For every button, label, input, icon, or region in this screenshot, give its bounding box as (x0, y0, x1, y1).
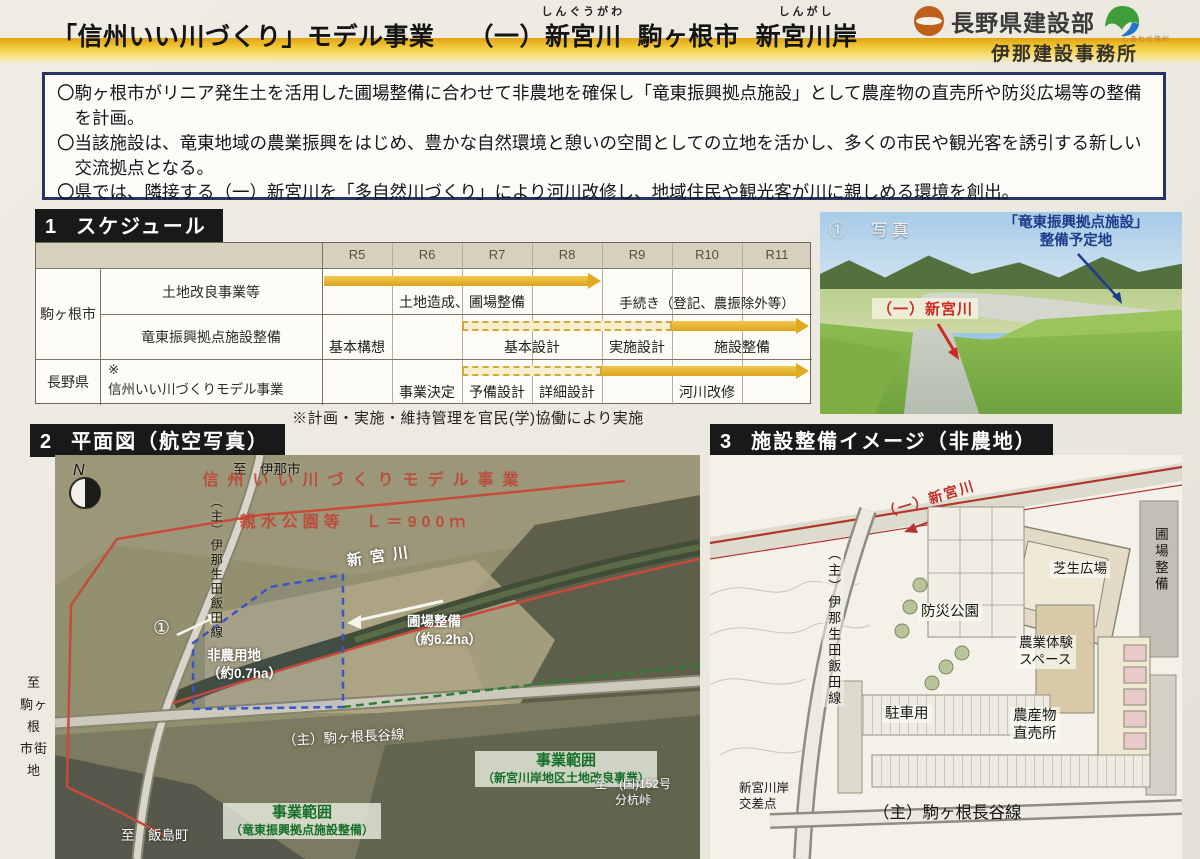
aerial-scope2-line1: 事業範囲 (482, 752, 650, 771)
aerial-to-komagane-line2: 駒ヶ根 (14, 694, 54, 738)
aerial-to-komagane-line1: 至 (14, 672, 54, 694)
site-photo: ① 写真 「竜東振興拠点施設」 整備予定地 （一）新宮川 (820, 212, 1182, 414)
plan-farm-exp-line1: 農業体験 (1019, 635, 1073, 652)
phase-zosei: 土地造成、圃場整備 (322, 292, 602, 312)
aerial-scope1-label: 事業範囲 （竜東振興拠点施設整備） (223, 803, 381, 839)
item-model-project-mark: ※ (108, 362, 314, 378)
photo-facility-label-line2: 整備予定地 (978, 232, 1174, 250)
title-river: 新宮川 (545, 23, 622, 51)
arrow-bar-river (602, 366, 796, 376)
aerial-scope1-line1: 事業範囲 (230, 804, 374, 823)
phase-tetsuzuki: 手続き（登記、農振除外等） (602, 292, 812, 312)
section1-number: 1 (45, 216, 58, 238)
summary-bullet-3: 〇県では、隣接する（一）新宮川を「多自然川づくり」により河川改修し、地域住民や観… (57, 180, 1149, 205)
section3-number: 3 (720, 431, 733, 453)
dotted-bar-river (462, 366, 602, 376)
plan-crossing-line1: 新宮川岸 (739, 781, 789, 797)
arrow-head-land (588, 273, 601, 289)
office-name: 伊那建設事務所 (991, 39, 1138, 66)
aerial-farmland-line2: （約6.2ha） (407, 631, 482, 649)
section2-number: 2 (40, 431, 53, 453)
phase-kasen-kaishu: 河川改修 (602, 382, 812, 402)
title-river-prefix: （一） (469, 23, 546, 51)
section3-title: 施設整備イメージ（非農地） (751, 431, 1037, 453)
dotted-bar-facility (462, 321, 672, 331)
summary-bullet-1: 〇駒ヶ根市がリニア発生土を活用した圃場整備に合わせて非農地を確保し「竜東振興拠点… (57, 81, 1149, 131)
title-city: 駒ヶ根市 (638, 23, 740, 51)
plan-lawn-label: 芝生広場 (1050, 561, 1110, 578)
gantt-row-3: 事業決定 予備設計 詳細設計 河川改修 (322, 359, 812, 405)
aerial-model-project-label: 信州いい川づくりモデル事業 (185, 471, 545, 492)
arrow-bar-land (324, 276, 588, 286)
plan-bosai-label: 防災公園 (918, 603, 982, 621)
item-model-project-name: 信州いい川づくりモデル事業 (108, 378, 314, 398)
site-plan: （一）新宮川 （主）伊那生田飯田線 芝生広場 農業体験 スペース 防災公園 農産… (710, 455, 1182, 859)
schedule-note: ※計画・実施・維持管理を官民(学)協働により実施 (292, 407, 644, 428)
item-land-improvement: 土地改良事業等 (100, 269, 322, 314)
aerial-photo: N 至 伊那市 （主）伊那生田飯田線 信州いい川づくりモデル事業 親水公園等 Ｌ… (55, 455, 700, 859)
plan-farm-exp-line2: スペース (1019, 652, 1073, 669)
aerial-nonfarm-line2: （約0.7ha） (207, 665, 282, 683)
group-komagane: 駒ヶ根市 (36, 269, 100, 359)
title-main: 「信州いい川づくり」モデル事業 (52, 23, 435, 51)
aerial-nonfarm-label: 非農用地 （約0.7ha） (207, 647, 282, 682)
year-col-r8: R8 (532, 247, 602, 262)
item-ryuto-facility: 竜東振興拠点施設整備 (100, 314, 322, 359)
plan-road-inada-label: （主）伊那生田飯田線 (822, 547, 844, 707)
aerial-farmland-label: 圃場整備 （約6.2ha） (407, 613, 482, 648)
group-nagano: 長野県 (36, 359, 100, 405)
gantt-row-2: 基本構想 基本設計 実施設計 施設整備 (322, 314, 812, 359)
aerial-to-152-line2: 分杭峠 (595, 793, 671, 809)
phase-shisetsu-seibi: 施設整備 (672, 337, 812, 357)
section2-title: 平面図（航空写真） (71, 431, 269, 453)
plan-crossing-label: 新宮川岸 交差点 (736, 781, 792, 812)
section2-header: 2平面図（航空写真） (30, 424, 285, 457)
plan-road-hase-label: （主）駒ヶ根長谷線 (870, 803, 1025, 824)
aerial-scope1-line2: （竜東振興拠点施設整備） (230, 823, 374, 838)
plan-hojo-label: 圃場整備 (1148, 527, 1171, 593)
item-model-project: ※ 信州いい川づくりモデル事業 (100, 359, 322, 405)
gantt-row-1: 土地造成、圃場整備 手続き（登記、農振除外等） (322, 269, 812, 314)
aerial-nonfarm-line1: 非農用地 (207, 647, 282, 665)
aerial-to-iijima: 至 飯島町 (121, 827, 189, 845)
document-page: 「信州いい川づくり」モデル事業（一）しんぐうがわ新宮川駒ヶ根市しんがし新宮川岸 … (0, 0, 1200, 859)
phase-kihon-koso: 基本構想 (322, 337, 392, 357)
phase-shosai-sekkei: 詳細設計 (532, 382, 602, 402)
plan-chokubai-line1: 農産物 (1013, 707, 1057, 725)
year-col-r5: R5 (322, 247, 392, 262)
year-col-r10: R10 (672, 247, 742, 262)
aerial-park-length-label: 親水公園等 Ｌ＝900ｍ (205, 513, 505, 534)
org-name: 長野県建設部 (951, 4, 1095, 38)
section3-header: 3施設整備イメージ（非農地） (710, 424, 1053, 457)
section1-header: 1スケジュール (35, 209, 223, 242)
photo-facility-label: 「竜東振興拠点施設」 整備予定地 (978, 214, 1174, 250)
phase-kihon-sekkei: 基本設計 (462, 337, 602, 357)
shiawase-shinshu-leaf-icon (1102, 4, 1142, 38)
summary-bullet-2: 〇当該施設は、竜東地域の農業振興をはじめ、豊かな自然環境と憩いの空間としての立地… (57, 131, 1149, 181)
plan-farm-exp-label: 農業体験 スペース (1016, 635, 1076, 669)
aerial-farmland-line1: 圃場整備 (407, 613, 482, 631)
org-logo-row: 長野県建設部 (914, 4, 1142, 38)
title-river-ruby: しんぐうがわ (541, 3, 625, 19)
phase-jigyo-kettei: 事業決定 (392, 382, 462, 402)
year-col-r7: R7 (462, 247, 532, 262)
aerial-to-komagane-line3: 市街地 (14, 738, 54, 782)
plan-chokubai-label: 農産物 直売所 (1010, 707, 1060, 743)
summary-box: 〇駒ヶ根市がリニア発生土を活用した圃場整備に合わせて非農地を確保し「竜東振興拠点… (42, 72, 1166, 200)
year-col-r6: R6 (392, 247, 462, 262)
arrow-head-facility (796, 318, 809, 334)
nagano-pref-icon (914, 6, 944, 36)
plan-parking-label: 駐車用 (882, 705, 932, 723)
title-site-ruby: しんがし (779, 3, 835, 19)
photo-tag: ① 写真 (829, 216, 913, 241)
aerial-to-komagane: 至 駒ヶ根 市街地 (14, 672, 54, 782)
aerial-to-152-line1: 至 (国)152号 (595, 777, 671, 793)
plan-chokubai-line2: 直売所 (1013, 725, 1057, 743)
phase-yobi-sekkei: 予備設計 (462, 382, 532, 402)
photo-river-label: （一）新宮川 (872, 298, 978, 319)
page-title: 「信州いい川づくり」モデル事業（一）しんぐうがわ新宮川駒ヶ根市しんがし新宮川岸 (52, 17, 858, 53)
title-site: 新宮川岸 (756, 23, 858, 51)
year-col-r11: R11 (742, 247, 812, 262)
year-col-r9: R9 (602, 247, 672, 262)
compass-n-label: N (73, 461, 85, 482)
phase-jisshi-sekkei: 実施設計 (602, 337, 672, 357)
arrow-bar-facility (672, 321, 796, 331)
plan-crossing-line2: 交差点 (739, 797, 789, 813)
schedule-table: R5 R6 R7 R8 R9 R10 R11 駒ヶ根市 長野県 土地改良事業等 … (35, 242, 811, 404)
aerial-marker-1: ① (153, 617, 170, 642)
aerial-to-152-label: 至 (国)152号 分杭峠 (595, 777, 671, 808)
arrow-head-river (796, 363, 809, 379)
photo-facility-label-line1: 「竜東振興拠点施設」 (978, 214, 1174, 232)
section1-title: スケジュール (76, 216, 207, 238)
